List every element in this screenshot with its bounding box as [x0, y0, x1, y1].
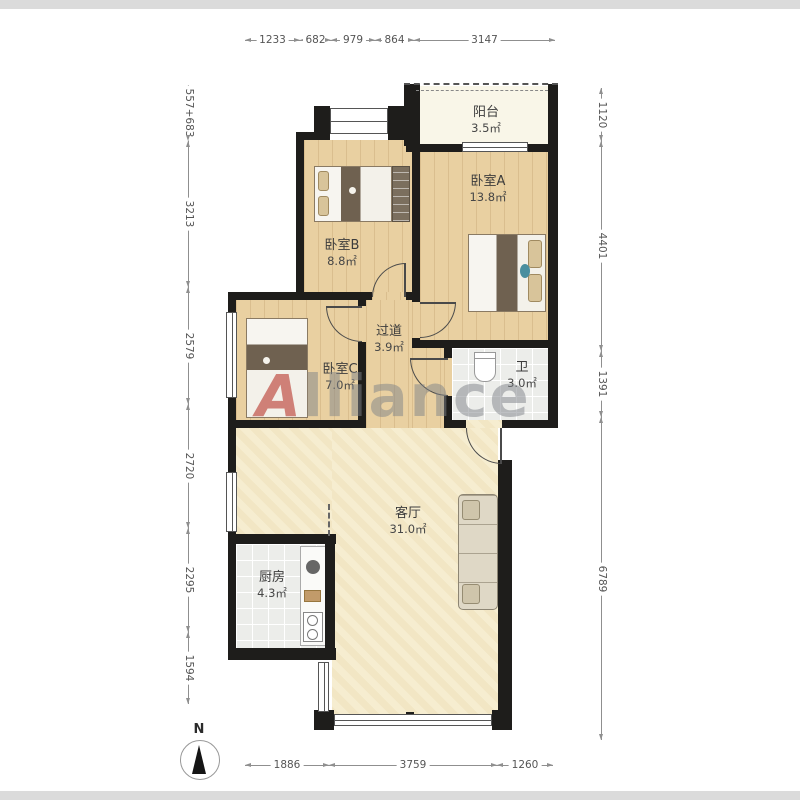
bedside-lamp — [348, 186, 357, 195]
dim-segment-left: 557+683 — [188, 85, 189, 141]
room-label-balcony: 阳台 3.5㎡ — [446, 105, 526, 136]
wall — [412, 340, 558, 348]
window-living-bottom — [334, 714, 492, 726]
bottom-gray-band — [0, 791, 800, 800]
floorplan-image: 阳台 3.5㎡ 卧室A 13.8㎡ 卧室B 8.8㎡ 卧室C 7.0㎡ 过道 3… — [0, 0, 800, 800]
dim-label: 864 — [381, 34, 407, 46]
bay-window-bedroom-b — [330, 108, 388, 134]
pillow — [318, 171, 329, 191]
dim-segment-left: 2720 — [188, 404, 189, 528]
dim-label: 1594 — [183, 652, 195, 685]
wall-living-right — [498, 460, 512, 712]
sofa-cushion — [462, 500, 480, 520]
room-area: 3.5㎡ — [446, 121, 526, 135]
dim-segment-top: 3147 — [414, 40, 555, 41]
watermark-first-letter: A — [256, 362, 303, 430]
pillow — [318, 196, 329, 216]
room-label-hallway: 过道 3.9㎡ — [349, 324, 429, 355]
dim-segment-top: 979 — [331, 40, 375, 41]
dim-segment-bottom: 1260 — [497, 765, 553, 766]
bay-window-post — [388, 106, 404, 140]
room-name: 卧室A — [448, 174, 528, 190]
bay-window-post — [314, 106, 330, 140]
dim-segment-left: 1594 — [188, 632, 189, 704]
wall — [444, 348, 452, 358]
watermark-logo: Alliance — [256, 362, 531, 430]
room-area: 8.8㎡ — [302, 254, 382, 268]
dim-segment-top: 1233 — [245, 40, 300, 41]
dim-label: 979 — [340, 34, 366, 46]
kitchen-opening-dashed — [328, 504, 330, 536]
balcony-dashed-line-inner — [416, 90, 548, 91]
wall-corner-post — [492, 710, 512, 730]
dim-segment-left: 2295 — [188, 528, 189, 632]
room-name: 过道 — [349, 324, 429, 340]
pillow — [528, 240, 542, 268]
top-gray-band — [0, 0, 800, 9]
dim-label: 3213 — [183, 198, 195, 231]
door-leaf-bedroom-b — [404, 263, 406, 297]
watermark-rest: lliance — [303, 362, 531, 430]
dim-label: 682 — [302, 34, 328, 46]
dim-segment-left: 2579 — [188, 287, 189, 404]
door-leaf-bedroom-c — [326, 306, 362, 308]
dim-segment-right: 4401 — [601, 141, 602, 351]
living-room-floor-left — [236, 428, 332, 534]
wall-kitchen-right — [325, 536, 335, 660]
room-name: 卧室B — [302, 238, 382, 254]
dim-segment-left: 3213 — [188, 141, 189, 287]
dim-label: 1391 — [596, 368, 608, 401]
dim-label: 2579 — [183, 329, 195, 362]
room-area: 31.0㎡ — [368, 522, 448, 536]
dim-label: 3147 — [468, 34, 501, 46]
dim-label: 2720 — [183, 450, 195, 483]
door-leaf-entry — [500, 428, 502, 464]
window-bedroom-c — [226, 312, 237, 398]
room-label-bedroom-a: 卧室A 13.8㎡ — [448, 174, 528, 205]
wall-left-outer — [228, 398, 236, 472]
wall — [228, 292, 372, 300]
room-label-kitchen: 厨房 4.3㎡ — [232, 570, 312, 601]
room-area: 13.8㎡ — [448, 190, 528, 204]
window-balcony-bedroom-a — [462, 142, 528, 152]
wall-corner-post — [314, 710, 334, 730]
dim-segment-right: 1120 — [601, 88, 602, 141]
room-area: 4.3㎡ — [232, 586, 312, 600]
sofa-cushion — [462, 584, 480, 604]
wardrobe-bedroom-b — [392, 166, 410, 222]
compass-north-label: N — [180, 722, 218, 737]
dim-segment-right: 1391 — [601, 351, 602, 417]
window-living-lower-left — [318, 662, 329, 712]
dim-label: 4401 — [596, 230, 608, 263]
room-label-living: 客厅 31.0㎡ — [368, 506, 448, 537]
compass-needle-icon — [192, 745, 206, 774]
door-leaf-bedroom-a — [420, 302, 456, 304]
dim-segment-bottom: 3759 — [329, 765, 497, 766]
bed-accent-decor — [520, 264, 530, 278]
wall — [412, 132, 420, 302]
dim-label: 1260 — [509, 759, 542, 771]
room-name: 客厅 — [368, 506, 448, 522]
window-living-left — [226, 472, 237, 532]
dim-label: 1233 — [256, 34, 289, 46]
dim-label: 1886 — [271, 759, 304, 771]
dim-segment-bottom: 1886 — [245, 765, 329, 766]
wall-left-outer — [228, 292, 236, 312]
room-name: 阳台 — [446, 105, 526, 121]
dim-label: 6789 — [596, 562, 608, 595]
stove-burner — [307, 615, 318, 626]
pillow — [528, 274, 542, 302]
balcony-dashed-line — [404, 83, 558, 85]
room-label-bedroom-b: 卧室B 8.8㎡ — [302, 238, 382, 269]
dim-label: 2295 — [183, 564, 195, 597]
toilet-tank-line — [474, 358, 496, 359]
wall — [296, 132, 304, 300]
wall — [528, 144, 558, 152]
dim-segment-right: 6789 — [601, 417, 602, 740]
dim-segment-top: 864 — [375, 40, 414, 41]
stove-burner — [307, 629, 318, 640]
dim-label: 557+683 — [183, 86, 195, 141]
dim-segment-top: 682 — [300, 40, 331, 41]
wall-balcony-left — [404, 84, 420, 146]
room-name: 厨房 — [232, 570, 312, 586]
dim-label: 3759 — [397, 759, 430, 771]
wall-kitchen-bottom — [228, 648, 336, 660]
wall-kitchen-top — [228, 534, 336, 544]
dim-label: 1120 — [596, 98, 608, 131]
wall — [406, 144, 462, 152]
room-area: 3.9㎡ — [349, 340, 429, 354]
door-leaf-bathroom — [410, 358, 448, 360]
